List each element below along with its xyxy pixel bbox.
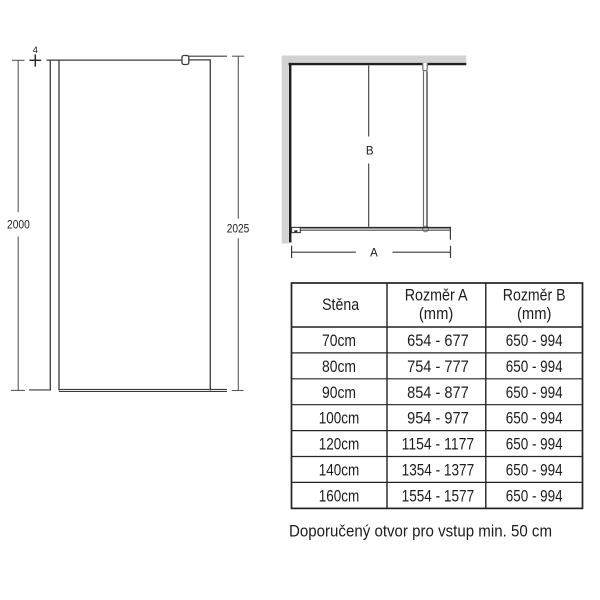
svg-text:1354 - 1377: 1354 - 1377 xyxy=(402,461,475,480)
svg-text:(mm): (mm) xyxy=(419,304,453,323)
svg-text:(mm): (mm) xyxy=(517,304,551,323)
svg-text:650 - 994: 650 - 994 xyxy=(506,331,563,350)
svg-text:2025: 2025 xyxy=(227,224,250,236)
svg-text:Rozměr B: Rozměr B xyxy=(503,285,566,304)
svg-text:650 - 994: 650 - 994 xyxy=(506,486,563,505)
svg-text:Doporučený otvor pro vstup min: Doporučený otvor pro vstup min. 50 cm xyxy=(289,522,552,541)
svg-text:654 - 677: 654 - 677 xyxy=(407,331,469,350)
svg-text:100cm: 100cm xyxy=(319,409,360,428)
svg-text:B: B xyxy=(366,146,374,158)
svg-text:4: 4 xyxy=(33,45,38,56)
svg-text:90cm: 90cm xyxy=(322,383,356,402)
svg-text:Rozměr A: Rozměr A xyxy=(405,285,468,304)
svg-text:70cm: 70cm xyxy=(322,331,356,350)
svg-text:650 - 994: 650 - 994 xyxy=(506,383,563,402)
svg-text:160cm: 160cm xyxy=(319,486,360,505)
svg-text:1554 - 1577: 1554 - 1577 xyxy=(402,486,475,505)
svg-text:120cm: 120cm xyxy=(319,435,360,454)
svg-text:854 - 877: 854 - 877 xyxy=(407,383,469,402)
svg-text:Stěna: Stěna xyxy=(322,295,359,314)
svg-text:650 - 994: 650 - 994 xyxy=(506,357,563,376)
svg-text:954 - 977: 954 - 977 xyxy=(407,409,469,428)
svg-text:2000: 2000 xyxy=(7,219,30,231)
svg-text:1154 - 1177: 1154 - 1177 xyxy=(402,435,475,454)
svg-text:650 - 994: 650 - 994 xyxy=(506,409,563,428)
svg-text:650 - 994: 650 - 994 xyxy=(506,461,563,480)
svg-text:650 - 994: 650 - 994 xyxy=(506,435,563,454)
svg-text:140cm: 140cm xyxy=(319,461,360,480)
svg-text:754 - 777: 754 - 777 xyxy=(407,357,469,376)
svg-text:A: A xyxy=(370,247,378,259)
svg-text:80cm: 80cm xyxy=(322,357,356,376)
